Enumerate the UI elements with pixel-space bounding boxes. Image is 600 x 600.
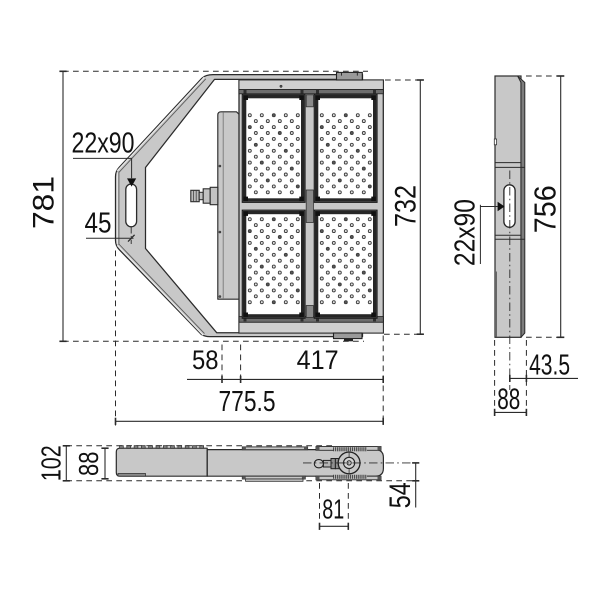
svg-text:81: 81 (322, 493, 344, 524)
svg-text:732: 732 (390, 185, 423, 227)
svg-text:756: 756 (528, 185, 563, 233)
svg-text:45: 45 (85, 208, 112, 240)
svg-text:775.5: 775.5 (219, 386, 276, 418)
svg-text:88: 88 (73, 451, 104, 476)
svg-text:781: 781 (27, 176, 60, 229)
svg-text:43.5: 43.5 (529, 349, 570, 381)
svg-text:54: 54 (384, 482, 417, 508)
svg-text:22x90: 22x90 (449, 199, 481, 266)
svg-text:88: 88 (497, 383, 520, 416)
svg-text:102: 102 (36, 445, 67, 481)
svg-text:58: 58 (192, 345, 219, 375)
svg-text:22x90: 22x90 (72, 128, 135, 160)
svg-text:417: 417 (297, 345, 339, 375)
